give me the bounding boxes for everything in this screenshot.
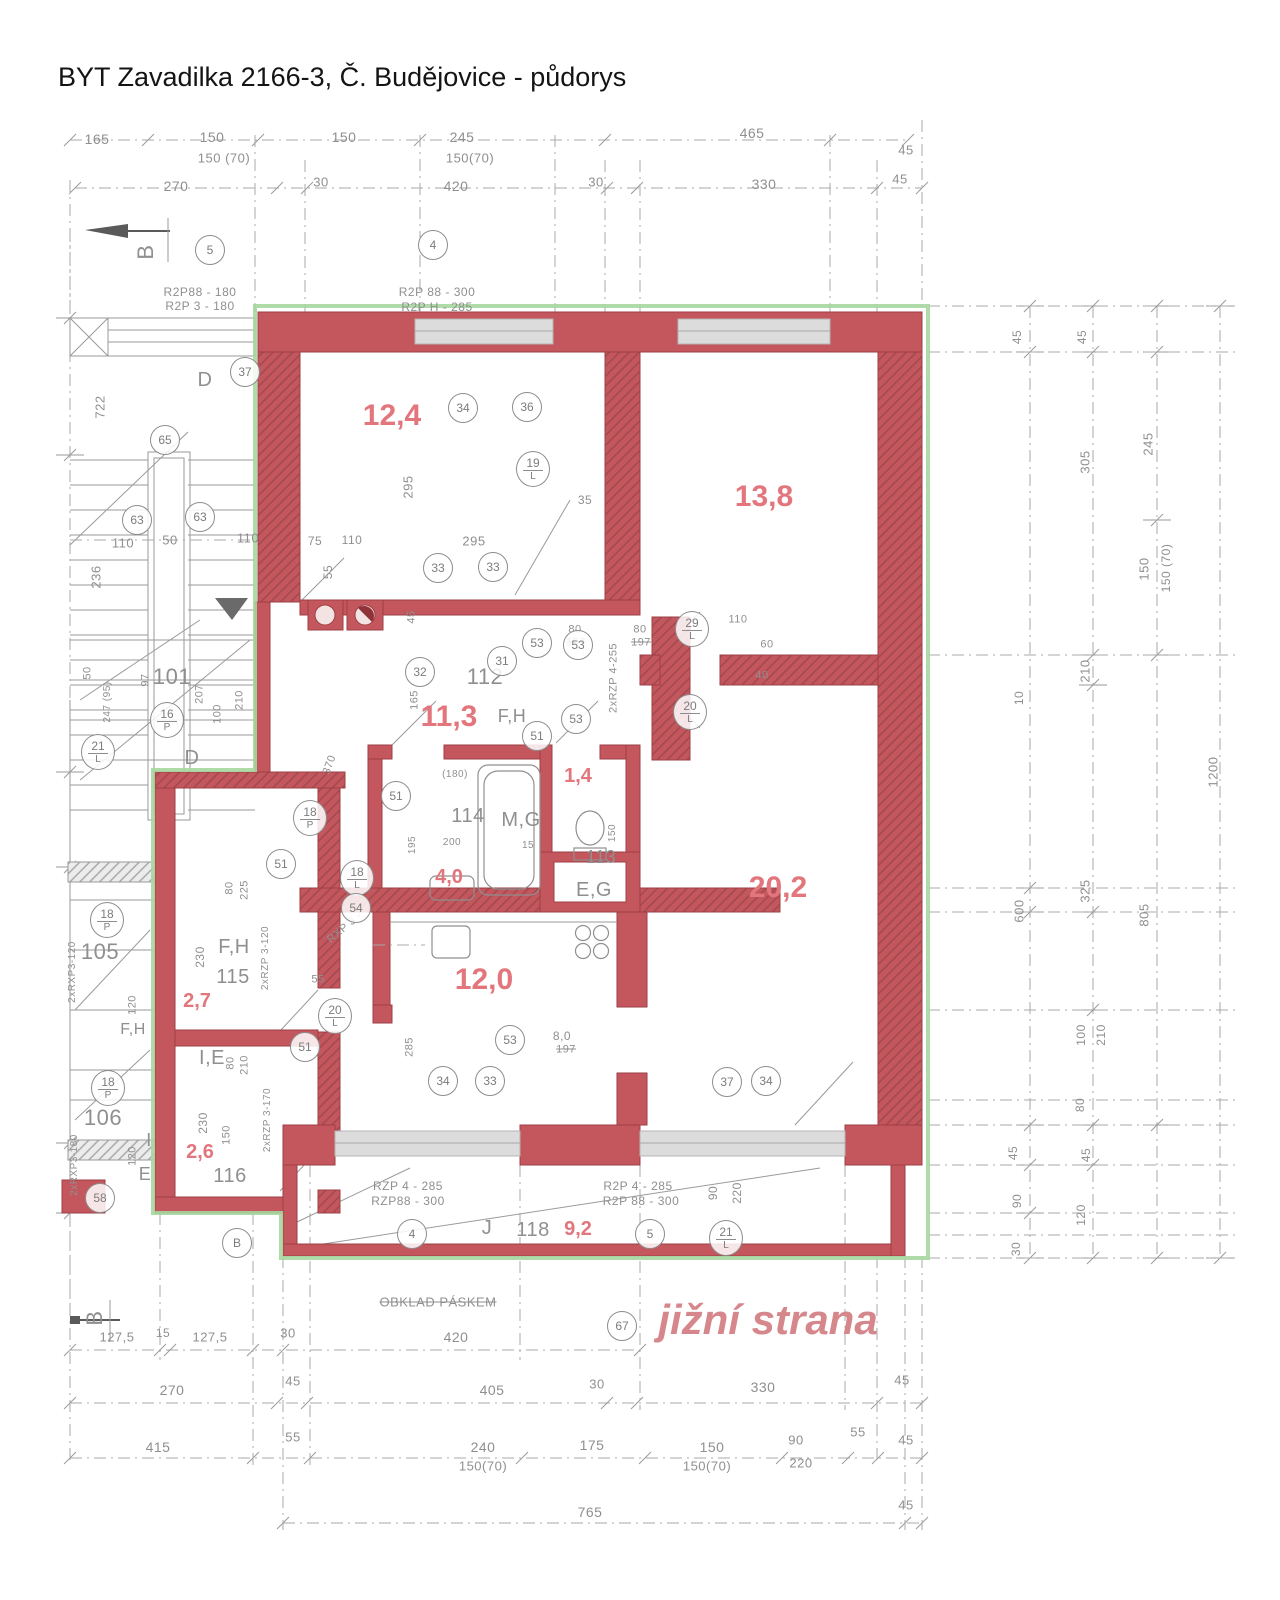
pencil-label: R2P 88 - 300 xyxy=(603,1195,680,1207)
pencil-label: 30 xyxy=(588,176,603,189)
bubble-number: B xyxy=(233,1237,241,1249)
bubble-number: 37 xyxy=(720,1076,733,1088)
bubble-number: 21 xyxy=(719,1226,732,1238)
reference-bubble: 63 xyxy=(185,502,215,532)
pencil-label: 90 xyxy=(1011,1194,1023,1208)
pencil-label: 285 xyxy=(405,1037,416,1057)
bubble-number: 33 xyxy=(486,561,499,573)
pencil-label: 1200 xyxy=(1207,757,1220,788)
bubble-number: 53 xyxy=(530,637,543,649)
pencil-label: 118 xyxy=(516,1220,549,1240)
pencil-label: 60 xyxy=(760,640,773,651)
pencil-label: 150(70) xyxy=(459,1460,507,1473)
bubble-number: 51 xyxy=(298,1041,311,1053)
stove xyxy=(576,926,591,941)
bubble-number: 34 xyxy=(456,402,469,414)
reference-bubble: 53 xyxy=(561,704,591,734)
pencil-label: 15 xyxy=(156,1327,170,1339)
pencil-label: 197 xyxy=(631,638,651,649)
pencil-label: 90 xyxy=(707,1186,719,1200)
bubble-letter: P xyxy=(97,921,118,933)
pencil-label: 230 xyxy=(194,946,206,968)
reference-bubble: 65 xyxy=(150,425,180,455)
pencil-label: 150(70) xyxy=(446,152,494,165)
reference-bubble: 33 xyxy=(475,1066,505,1096)
pencil-label: 150 xyxy=(1138,557,1151,580)
reference-bubble: 37 xyxy=(712,1067,742,1097)
pencil-label: B xyxy=(84,1310,106,1325)
reference-bubble: 4 xyxy=(397,1219,427,1249)
pencil-label: 55 xyxy=(311,975,324,986)
bubble-number: 31 xyxy=(495,655,508,667)
pencil-label: 195 xyxy=(408,836,418,854)
pencil-label: 220 xyxy=(789,1457,812,1470)
bubble-number: 51 xyxy=(274,858,287,870)
pencil-label: 150 xyxy=(200,130,225,144)
pencil-label: 150 xyxy=(332,130,357,144)
pencil-label: 236 xyxy=(90,565,103,588)
bubble-number: 5 xyxy=(207,244,214,256)
reference-bubble: B xyxy=(222,1228,252,1258)
pencil-label: 75 xyxy=(308,535,322,547)
pencil-label: 240 xyxy=(471,1440,496,1454)
room-area-label: 2,7 xyxy=(183,991,211,1011)
bubble-number: 29 xyxy=(685,617,698,629)
reference-bubble: 54 xyxy=(341,893,371,923)
pencil-label: 175 xyxy=(580,1438,605,1452)
reference-bubble: 5 xyxy=(635,1219,665,1249)
reference-bubble: 51 xyxy=(522,721,552,751)
bubble-number: 20 xyxy=(683,700,696,712)
pencil-label: 110 xyxy=(728,615,747,626)
reference-bubble: 33 xyxy=(478,552,508,582)
pencil-label: 295 xyxy=(462,535,485,548)
room-area-label: 12,4 xyxy=(363,401,421,431)
room-area-label: 11,3 xyxy=(421,702,478,732)
pencil-label: 420 xyxy=(444,1330,469,1344)
pencil-label: 210 xyxy=(1095,1024,1107,1046)
pencil-label: 165 xyxy=(85,132,110,146)
bubble-number: 5 xyxy=(647,1228,654,1240)
room-area-label: 9,2 xyxy=(564,1219,592,1239)
bubble-number: 33 xyxy=(431,562,444,574)
pencil-label: 45 xyxy=(1011,330,1023,344)
pencil-label: 35 xyxy=(578,494,592,506)
pencil-label: R2P H - 285 xyxy=(401,301,472,313)
bubble-number: 36 xyxy=(520,401,533,413)
reference-bubble: 18P xyxy=(90,902,124,938)
pencil-label: J xyxy=(482,1218,493,1238)
reference-bubble: 51 xyxy=(381,781,411,811)
floor-plan-canvas: BYT Zavadilka 2166-3, Č. Budějovice - pů… xyxy=(0,0,1280,1600)
bubble-number: 4 xyxy=(409,1228,416,1240)
reference-bubble: 16P xyxy=(150,702,184,738)
bubble-number: 51 xyxy=(530,730,543,742)
pencil-label: 45 xyxy=(407,610,418,623)
pencil-label: 2xRZP 3-170 xyxy=(263,1088,273,1152)
bubble-number: 18 xyxy=(100,908,113,920)
pencil-label: 8,0 xyxy=(553,1030,571,1042)
pencil-label: 270 xyxy=(164,179,189,193)
pencil-label: 120 xyxy=(128,995,139,1015)
pencil-label: 270 xyxy=(160,1383,185,1397)
reference-bubble: 5 xyxy=(195,235,225,265)
pencil-label: 415 xyxy=(146,1440,171,1454)
pencil-label: 114 xyxy=(451,806,484,826)
reference-bubble: 34 xyxy=(751,1066,781,1096)
bubble-letter: L xyxy=(523,470,544,482)
pencil-label: RZP 4 - 285 xyxy=(373,1180,443,1192)
pencil-label: I,E xyxy=(199,1048,225,1068)
reference-bubble: 21L xyxy=(81,734,115,770)
bubble-number: 18 xyxy=(101,1076,114,1088)
reference-bubble: 18P xyxy=(293,800,327,836)
pencil-label: 765 xyxy=(578,1505,603,1519)
pencil-label: OBKLAD PÁSKEM xyxy=(379,1296,496,1309)
bubble-letter: P xyxy=(300,819,321,831)
pencil-label: 45 xyxy=(894,1374,909,1387)
pencil-label: 40 xyxy=(755,671,768,682)
reference-bubble: 33 xyxy=(423,553,453,583)
pencil-label: 45 xyxy=(898,1434,913,1447)
pencil-label: E xyxy=(139,1165,152,1183)
pencil-label: 80 xyxy=(226,1056,237,1069)
reference-bubble: 36 xyxy=(512,392,542,422)
pencil-label: 150 xyxy=(222,1125,233,1145)
reference-bubble: 18P xyxy=(91,1070,125,1106)
pencil-label: 220 xyxy=(731,1182,743,1204)
pencil-label: 2xRXP3-120 xyxy=(68,941,78,1003)
pencil-label: F,H xyxy=(218,937,250,957)
bubble-number: 37 xyxy=(238,366,251,378)
pencil-label: D xyxy=(185,748,200,768)
reference-bubble: 58 xyxy=(85,1183,115,1213)
pencil-label: 45 xyxy=(1076,330,1088,344)
pencil-label: 600 xyxy=(1013,899,1026,922)
bubble-number: 63 xyxy=(130,514,143,526)
pencil-label: 30 xyxy=(280,1327,295,1340)
reference-bubble: 20L xyxy=(318,998,352,1034)
pencil-label: R2P88 - 180 xyxy=(164,286,237,298)
pencil-label: 330 xyxy=(752,177,777,191)
pencil-label: 247 (95) xyxy=(103,681,113,722)
reference-bubble: 18L xyxy=(340,860,374,896)
pencil-label: 45 xyxy=(898,1499,913,1512)
room-area-label: 4,0 xyxy=(435,867,463,887)
pencil-label: F,H xyxy=(498,707,527,725)
sink-symbol xyxy=(315,605,335,625)
pencil-label: 2xRXP3-180 xyxy=(70,1134,80,1196)
bubble-letter: L xyxy=(682,630,703,642)
windows-layer xyxy=(335,319,845,1156)
bubble-number: 65 xyxy=(158,434,171,446)
bubble-number: 51 xyxy=(389,790,402,802)
pencil-label: 80 xyxy=(1074,1098,1086,1112)
pencil-label: 722 xyxy=(94,395,107,418)
bubble-letter: L xyxy=(680,713,701,725)
pencil-label: E,G xyxy=(576,880,612,900)
bubble-number: 54 xyxy=(349,902,362,914)
pencil-label: 197 xyxy=(556,1045,576,1056)
pencil-label: 45 xyxy=(892,173,907,186)
pencil-label: 113 xyxy=(586,848,616,866)
bubble-number: 18 xyxy=(350,866,363,878)
pencil-label: 245 xyxy=(450,130,475,144)
pencil-label: 50 xyxy=(162,534,177,547)
bubble-number: 4 xyxy=(430,239,437,251)
bubble-number: 53 xyxy=(571,639,584,651)
room-area-label: 20,2 xyxy=(749,873,807,903)
reference-bubble: 4 xyxy=(418,230,448,260)
bubble-number: 19 xyxy=(526,457,539,469)
bubble-letter: L xyxy=(325,1017,346,1029)
pencil-label: (180) xyxy=(442,770,468,780)
pencil-label: 45 xyxy=(898,144,913,157)
room-area-label: 1,4 xyxy=(564,766,592,786)
pencil-label: 10 xyxy=(1013,691,1025,705)
reference-bubble: 67 xyxy=(607,1311,637,1341)
pencil-label: 150 xyxy=(608,824,618,842)
bubble-number: 53 xyxy=(569,713,582,725)
pencil-label: 30 xyxy=(1010,1242,1022,1256)
pencil-label: D xyxy=(198,370,213,390)
pencil-label: 50 xyxy=(83,666,94,679)
pencil-label: 110 xyxy=(112,537,134,550)
bubble-letter: P xyxy=(98,1089,119,1101)
pencil-label: R2P 88 - 300 xyxy=(399,286,476,298)
pencil-label: 110 xyxy=(237,532,259,545)
reference-bubble: 51 xyxy=(266,849,296,879)
pencil-label: 127,5 xyxy=(99,1331,134,1344)
pencil-label: 330 xyxy=(751,1380,776,1394)
pencil-label: 150 xyxy=(700,1440,725,1454)
bubble-letter: L xyxy=(88,753,109,765)
pencil-label: 90 xyxy=(788,1434,803,1447)
bubble-letter: L xyxy=(347,879,368,891)
pencil-label: 150 (70) xyxy=(1160,544,1172,593)
pencil-label: 55 xyxy=(285,1431,300,1444)
pencil-label: 101 xyxy=(153,666,191,688)
pencil-label: 120 xyxy=(1075,1204,1087,1226)
reference-bubble: 29L xyxy=(675,611,709,647)
pencil-label: 100 xyxy=(1075,1024,1087,1046)
pencil-label: 210 xyxy=(240,1055,251,1075)
pencil-label: 210 xyxy=(235,690,246,710)
pencil-label: 295 xyxy=(402,475,415,498)
pencil-label: 110 xyxy=(342,534,363,546)
pencil-label: 116 xyxy=(213,1166,246,1186)
pencil-label: 30 xyxy=(589,1378,604,1391)
pencil-label: F,H xyxy=(120,1022,146,1038)
room-area-label: 13,8 xyxy=(735,482,793,512)
pencil-label: M,G xyxy=(501,810,540,830)
pencil-label: 106 xyxy=(84,1107,122,1129)
pencil-label: 465 xyxy=(740,126,765,140)
pencil-label: 805 xyxy=(1138,903,1151,926)
pencil-label: 105 xyxy=(81,941,119,963)
bubble-number: 63 xyxy=(193,511,206,523)
pencil-label: 2xRZP 4-255 xyxy=(609,643,620,713)
pencil-label: 150(70) xyxy=(683,1460,731,1473)
kitchen-sink xyxy=(432,926,470,958)
bubble-number: 34 xyxy=(759,1075,772,1087)
bubble-number: 33 xyxy=(483,1075,496,1087)
reference-bubble: 51 xyxy=(290,1032,320,1062)
pencil-label: 405 xyxy=(480,1383,505,1397)
room-area-label: 12,0 xyxy=(455,965,513,995)
pencil-label: 207 xyxy=(195,684,206,704)
bubble-number: 16 xyxy=(160,708,173,720)
reference-bubble: 34 xyxy=(448,393,478,423)
plan-linework xyxy=(0,0,1280,1600)
bubble-number: 21 xyxy=(91,740,104,752)
pencil-label: 127,5 xyxy=(192,1331,227,1344)
reference-bubble: 31 xyxy=(487,646,517,676)
pencil-label: 210 xyxy=(1079,659,1092,682)
pencil-label: 305 xyxy=(1079,450,1092,473)
pencil-label: 45 xyxy=(285,1375,300,1388)
reference-bubble: 34 xyxy=(428,1066,458,1096)
pencil-label: 2xRZP 3-120 xyxy=(261,926,271,990)
bubble-number: 67 xyxy=(615,1320,628,1332)
toilet xyxy=(576,811,604,845)
pencil-label: 225 xyxy=(240,880,251,900)
room-area-label: 2,6 xyxy=(186,1142,214,1162)
pencil-label: 45 xyxy=(1080,1148,1092,1162)
pencil-label: 230 xyxy=(197,1112,209,1134)
bubble-letter: P xyxy=(157,721,178,733)
pencil-label: 45 xyxy=(1007,1146,1019,1160)
reference-bubble: 37 xyxy=(230,357,260,387)
pencil-label: I xyxy=(146,1131,152,1149)
pencil-label: 80 xyxy=(225,881,236,894)
reference-bubble: 19L xyxy=(516,451,550,487)
reference-bubble: 21L xyxy=(709,1220,743,1256)
pencil-label: 120 xyxy=(128,1146,139,1166)
pencil-label: R2P 3 - 180 xyxy=(165,300,234,312)
bubble-number: 34 xyxy=(436,1075,449,1087)
pencil-label: 55 xyxy=(850,1426,865,1439)
reference-bubble: 32 xyxy=(405,657,435,687)
reference-bubble: 53 xyxy=(563,630,593,660)
reference-bubble: 53 xyxy=(522,628,552,658)
reference-bubble: 63 xyxy=(122,505,152,535)
pencil-label: 80 xyxy=(633,625,646,636)
reference-bubble: 20L xyxy=(673,694,707,730)
south-side-label: jižní strana xyxy=(658,1299,877,1341)
pencil-label: R2P 4 - 285 xyxy=(603,1180,672,1192)
pencil-label: 55 xyxy=(322,565,334,579)
pencil-label: 15 xyxy=(522,841,534,851)
pencil-label: 420 xyxy=(444,179,469,193)
pencil-label: 325 xyxy=(1079,879,1092,902)
reference-bubble: 53 xyxy=(495,1025,525,1055)
bubble-number: 32 xyxy=(413,666,426,678)
bubble-number: 58 xyxy=(93,1192,106,1204)
bubble-number: 18 xyxy=(303,806,316,818)
pencil-label: 150 (70) xyxy=(198,152,250,165)
pencil-label: 200 xyxy=(443,838,461,848)
pencil-label: 245 xyxy=(1142,432,1155,455)
bubble-number: 20 xyxy=(328,1004,341,1016)
walls-layer xyxy=(62,312,922,1256)
bubble-number: 53 xyxy=(503,1034,516,1046)
pencil-label: B xyxy=(135,244,157,259)
pencil-label: 30 xyxy=(313,176,328,189)
bubble-letter: L xyxy=(716,1239,737,1251)
pencil-label: 97 xyxy=(141,673,152,686)
pencil-label: 165 xyxy=(410,690,421,710)
pencil-label: 100 xyxy=(213,704,224,724)
pencil-label: RZP88 - 300 xyxy=(371,1195,445,1207)
pencil-label: 115 xyxy=(216,967,249,987)
